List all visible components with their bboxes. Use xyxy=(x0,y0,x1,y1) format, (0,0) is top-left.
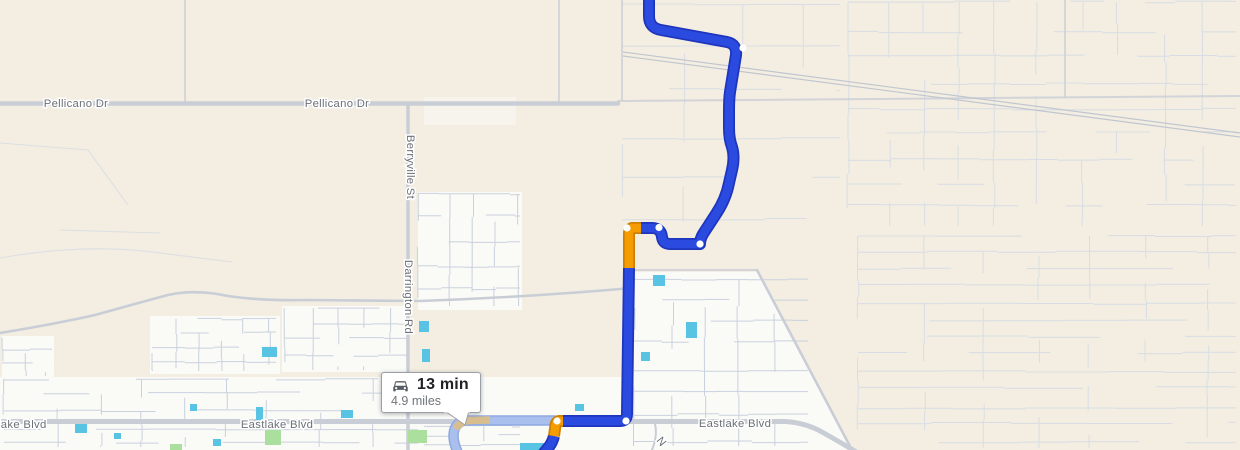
berryville-st-label: Berryville St xyxy=(404,135,416,200)
water-pool xyxy=(190,404,197,411)
water-pool xyxy=(114,433,121,439)
eastlake-blvd-label: Eastlake Blvd xyxy=(699,418,771,430)
route-waypoint-dot[interactable] xyxy=(623,224,630,231)
route-waypoint-dot[interactable] xyxy=(696,240,703,247)
water-pool xyxy=(419,321,429,332)
route-info-tooltip[interactable]: 13 min 4.9 miles xyxy=(381,372,481,413)
water-pool xyxy=(641,352,650,361)
water-pool xyxy=(213,439,221,446)
developed-zone xyxy=(0,377,632,450)
route-waypoint-dot[interactable] xyxy=(739,44,746,51)
pellicano-dr-label: Pellicano Dr xyxy=(44,98,109,110)
developed-zone xyxy=(150,316,280,374)
water-pool xyxy=(341,410,353,418)
water-pool xyxy=(686,322,697,338)
water-pool xyxy=(575,404,584,411)
water-pool xyxy=(422,349,430,362)
pellicano-dr-label: Pellicano Dr xyxy=(305,98,370,110)
developed-zone xyxy=(418,192,522,310)
tooltip-duration-row: 13 min xyxy=(390,376,469,394)
park-patch xyxy=(408,430,427,443)
map-canvas[interactable]: Pellicano Dr Pellicano Dr Berryville St … xyxy=(0,0,1240,450)
route-distance: 4.9 miles xyxy=(391,394,469,408)
park-patch xyxy=(170,444,182,450)
water-pool xyxy=(75,424,87,433)
route-duration: 13 min xyxy=(417,376,469,394)
darrington-rd-label: Darrington Rd xyxy=(402,260,414,334)
route-waypoint-dot[interactable] xyxy=(622,417,629,424)
route-waypoint-dot[interactable] xyxy=(655,224,662,231)
developed-zone xyxy=(2,336,54,378)
developed-zone xyxy=(424,97,516,125)
route-waypoint-dot[interactable] xyxy=(553,417,560,424)
park-patch xyxy=(265,430,281,445)
eastlake-blvd-label: lake Blvd xyxy=(0,419,47,431)
water-pool xyxy=(653,275,665,286)
tooltip-pointer xyxy=(444,411,472,427)
car-icon xyxy=(390,377,411,393)
eastlake-blvd-label: Eastlake Blvd xyxy=(241,419,313,431)
water-pool xyxy=(262,347,277,357)
